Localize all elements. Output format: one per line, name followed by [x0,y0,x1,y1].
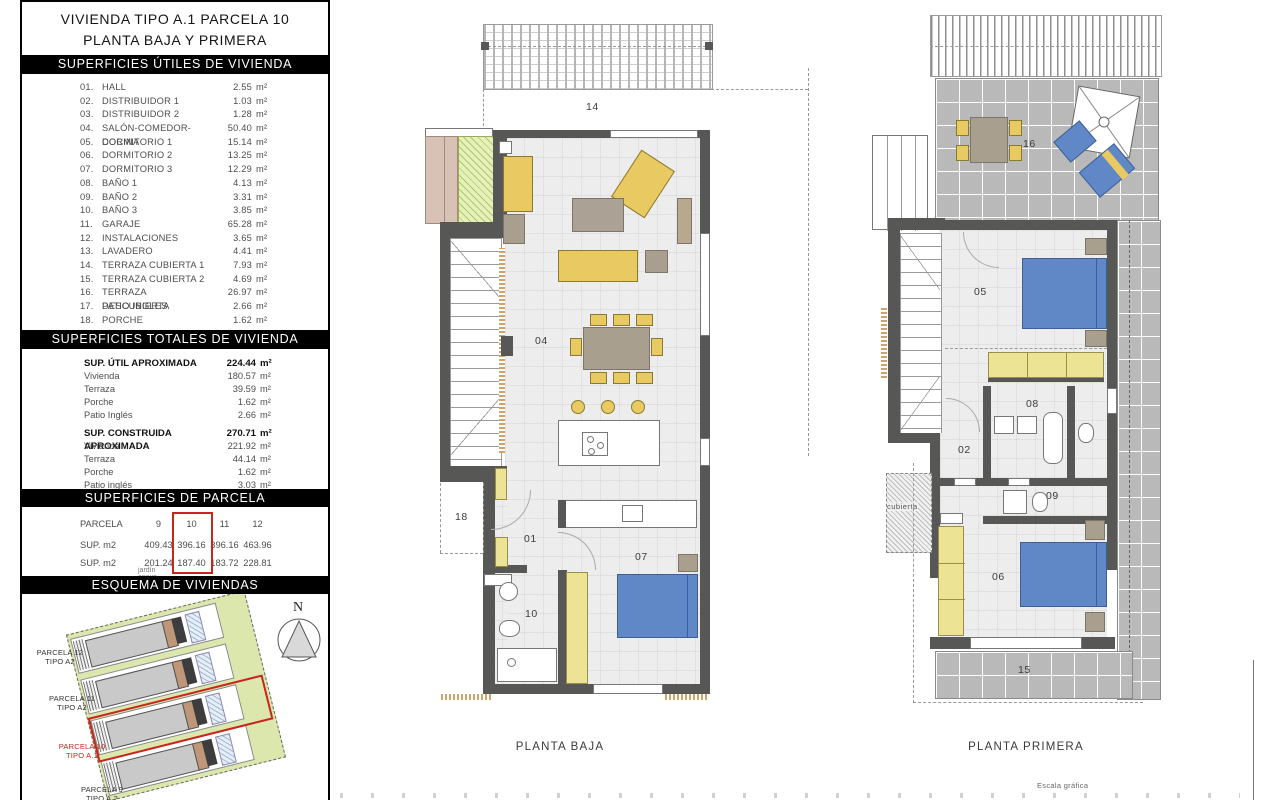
room-area-unit: m² [252,177,278,191]
total-row-name: Porche [84,396,204,409]
dining-chair [613,314,630,326]
label-parcela-12-line1: PARCELA 12 [28,648,92,657]
label-parcela-10-line1: PARCELA 10 [50,742,114,751]
total-row: Porche 1.62 m² [22,466,332,479]
wall-partition [983,386,991,478]
boundary-dashed-line [913,702,1143,703]
room-name: PORCHE [102,314,206,328]
room-number: 07. [80,163,102,177]
room-area-row: 15. TERRAZA CUBIERTA 2 4.69 m² [22,273,328,287]
room-area-unit: m² [252,108,278,122]
room-area-value: 15.14 [206,136,252,150]
total-row: Terraza 44.14 m² [22,453,332,466]
section-header-superficies-totales: SUPERFICIES TOTALES DE VIVIENDA [20,330,330,349]
kitchen-island [558,420,660,466]
toilet [1078,423,1094,443]
dining-chair [570,338,582,356]
room-number: 10. [80,204,102,218]
room-number: 06. [80,149,102,163]
boundary-dashed-line [1129,220,1130,698]
room-area-value: 4.69 [206,273,252,287]
total-row-unit: m² [256,396,282,409]
porch-outline [483,483,484,553]
room-number: 12. [80,232,102,246]
total-row: Vivienda 180.57 m² [22,370,332,383]
room-number: 18. [80,314,102,328]
terrace-chair [1009,145,1022,161]
label-parcela-9-line1: PARCELA 9 [70,785,134,794]
room-label-distribuidor1: 02 [958,444,971,456]
room-area-unit: m² [252,273,278,287]
wardrobe-divider [939,599,965,600]
label-parcela-11-line2: TIPO A2 [40,703,104,712]
stair-diagonal [450,398,500,456]
total-row-name: Terraza [84,383,204,396]
total-row: Terraza 39.59 m² [22,383,332,396]
pergola-grid [483,24,713,90]
dining-chair [636,372,653,384]
room-name: TERRAZA CUBIERTA 1 [102,259,206,273]
room-number: 09. [80,191,102,205]
dining-chair [636,314,653,326]
sup-value: 463.96 [241,540,274,550]
wall-stub [501,336,513,356]
room-name: GARAJE [102,218,206,232]
bed [1020,542,1107,607]
room-area-unit: m² [252,81,278,95]
total-construida-value: 270.71 [204,427,256,440]
room-name: INSTALACIONES [102,232,206,246]
total-construida-rows: Vivienda 221.92 m² Terraza 44.14 m² Porc… [22,440,332,492]
plot-pool [215,733,237,766]
total-row-value: 180.57 [204,370,256,383]
room-area-row: 16. TERRAZA DESCUBIERTA 26.97 m² [22,286,328,300]
room-label-dormitorio1: 05 [974,286,987,298]
wardrobe [988,352,1104,378]
room-number: 08. [80,177,102,191]
total-row-name: Patio Inglés [84,409,204,422]
plot-pool [185,611,207,644]
room-area-value: 2.55 [206,81,252,95]
porch-outline [440,553,483,554]
parcel-col: 12 [241,519,274,529]
total-construida-header: SUP. CONSTRUIDA APROXIMADA 270.71 m² [22,427,332,440]
room-area-value: 7.93 [206,259,252,273]
insulation-hatch [665,694,709,700]
titleblock-frame-line [1253,660,1254,800]
total-row-unit: m² [256,409,282,422]
room-area-unit: m² [252,163,278,177]
closet [495,468,507,500]
planter-hatch [458,136,495,226]
terrace-boundary-line [711,89,808,90]
room-number: 15. [80,273,102,287]
dining-table [583,327,650,370]
room-area-unit: m² [252,259,278,273]
room-area-unit: m² [252,149,278,163]
label-parcela-10-line2: TIPO A.1 [50,751,114,760]
room-area-unit: m² [252,245,278,259]
room-area-unit: m² [252,136,278,150]
total-row-value: 44.14 [204,453,256,466]
total-row-name: Porche [84,466,204,479]
room-area-unit: m² [252,122,278,136]
bathtub [1043,412,1063,464]
total-util-block: SUP. ÚTIL APROXIMADA 224.44 m² Vivienda … [22,357,332,422]
total-util-unit: m² [256,357,282,370]
room-area-value: 65.28 [206,218,252,232]
section-header-esquema: ESQUEMA DE VIVIENDAS [20,576,330,595]
total-row-unit: m² [256,370,282,383]
total-row-name: Terraza [84,453,204,466]
total-row-name: Vivienda [84,370,204,383]
room-area-value: 3.31 [206,191,252,205]
boundary-dashed-line [913,463,914,703]
insulation-hatch [441,694,491,700]
window-east [700,438,710,466]
total-row: Porche 1.62 m² [22,396,332,409]
highlight-parcel-10-box [172,512,213,574]
room-area-unit: m² [252,314,278,328]
terrace-chair [956,145,969,161]
bar-stool [631,400,645,414]
door-gap [1008,478,1030,486]
room-label-dormitorio2: 06 [992,571,1005,583]
total-row-unit: m² [256,440,282,453]
room-name: TERRAZA DESCUBIERTA [102,286,206,300]
nightstand [1085,520,1105,540]
room-number: 17. [80,300,102,314]
room-number: 13. [80,245,102,259]
room-number: 02. [80,95,102,109]
room-label-bano3: 10 [525,608,538,620]
toilet [1032,492,1048,512]
plan-caption-baja: PLANTA BAJA [480,741,640,753]
room-name: BAÑO 1 [102,177,206,191]
room-label-terraza-descubierta: 16 [1023,138,1036,150]
total-row-unit: m² [256,383,282,396]
wall-stair-west [440,238,450,466]
terrace-table [970,117,1008,163]
plot-pool [195,652,217,685]
room-label-bano1: 08 [1026,398,1039,410]
wall-east [700,130,710,694]
wardrobe-divider [939,563,965,564]
wardrobe [566,572,588,684]
room-number: 04. [80,122,102,136]
door-gap [954,478,976,486]
room-area-row: 17. PATIO INGLES 2.66 m² [22,300,328,314]
insulation-hatch [881,308,887,378]
room-label-salon: 04 [535,335,548,347]
parcel-col: 9 [142,519,175,529]
room-divider-dashed [945,348,1107,349]
label-parcela-12-line2: TIPO A2 [28,657,92,666]
stair-line [901,136,902,231]
room-number: 05. [80,136,102,150]
room-area-unit: m² [252,300,278,314]
scale-bar-ticks [340,793,1240,798]
total-construida-block: SUP. CONSTRUIDA APROXIMADA 270.71 m² Viv… [22,427,332,492]
wall-segment [440,222,507,238]
roof-patch [886,473,932,553]
room-number: 01. [80,81,102,95]
room-area-row: 14. TERRAZA CUBIERTA 1 7.93 m² [22,259,328,273]
room-area-row: 03. DISTRIBUIDOR 2 1.28 m² [22,108,328,122]
sliding-door [593,684,663,694]
wardrobe [938,526,964,636]
wardrobe-divider [1066,353,1067,379]
burner [597,442,604,449]
room-area-row: 09. BAÑO 2 3.31 m² [22,191,328,205]
room-area-row: 10. BAÑO 3 3.85 m² [22,204,328,218]
sheet-title-line1: VIVIENDA TIPO A.1 PARCELA 10 [22,9,328,30]
parcel-label: PARCELA [80,519,142,529]
parcel-table: PARCELA 9 10 11 12 SUP. m2 409.43 396.16… [20,507,330,576]
shower [497,648,557,682]
room-label-terraza-cubierta1: 14 [586,101,599,113]
room-area-row: 06. DORMITORIO 2 13.25 m² [22,149,328,163]
section-header-superficies-parcela: SUPERFICIES DE PARCELA [20,489,330,508]
room-area-value: 12.29 [206,163,252,177]
terrace-boundary-line [483,89,484,131]
room-area-row: 18. PORCHE 1.62 m² [22,314,328,328]
room-number: 14. [80,259,102,273]
stair-diagonal [900,235,940,290]
room-number: 16. [80,286,102,300]
room-label-terraza-cubierta2: 15 [1018,664,1031,676]
scale-label: Escala gráfica [1037,781,1088,790]
room-area-value: 2.66 [206,300,252,314]
bath-sink [994,416,1014,434]
burner [588,448,595,455]
coffee-table [572,198,624,232]
total-row-value: 2.66 [204,409,256,422]
label-parcela-11: PARCELA 11 TIPO A2 [40,694,104,712]
room-area-value: 4.41 [206,245,252,259]
room-area-value: 3.85 [206,204,252,218]
room-number: 03. [80,108,102,122]
shelf [940,513,963,524]
room-area-row: 12. INSTALACIONES 3.65 m² [22,232,328,246]
stair-diagonal [900,376,940,431]
label-parcela-12: PARCELA 12 TIPO A2 [28,648,92,666]
label-parcela-11-line1: PARCELA 11 [40,694,104,703]
room-area-unit: m² [252,95,278,109]
total-row-value: 1.62 [204,466,256,479]
bar-stool [601,400,615,414]
pergola-beam-line [930,46,1160,47]
room-area-unit: m² [252,204,278,218]
room-area-unit: m² [252,286,278,300]
room-area-value: 1.03 [206,95,252,109]
nightstand [678,554,698,572]
tv-sideboard [677,198,692,244]
dining-chair [590,372,607,384]
room-area-row: 08. BAÑO 1 4.13 m² [22,177,328,191]
sup-value: 409.43 [142,540,175,550]
room-area-row: 13. LAVADERO 4.41 m² [22,245,328,259]
room-area-value: 3.65 [206,232,252,246]
bed-headboard-line [1096,259,1097,328]
label-parcela-10: PARCELA 10 TIPO A.1 [50,742,114,760]
floor-plan-planta-baja: 14 18 [425,8,817,738]
exterior-stair [872,135,928,230]
counter-end-wall [558,500,566,528]
storage-unit [425,136,445,224]
total-row-name: Vivienda [84,440,204,453]
room-name: TERRAZA CUBIERTA 2 [102,273,206,287]
wall-partition [1067,386,1075,478]
terrace-chair [956,120,969,136]
title-box: VIVIENDA TIPO A.1 PARCELA 10 PLANTA BAJA… [20,0,330,55]
dining-chair [651,338,663,356]
total-row-value: 39.59 [204,383,256,396]
bar-stool [571,400,585,414]
total-construida-label: SUP. CONSTRUIDA APROXIMADA [84,427,204,440]
room-name: HALL [102,81,206,95]
room-name: BAÑO 2 [102,191,206,205]
burner [587,436,594,443]
window-east [700,233,710,336]
room-name: DORMITORIO 2 [102,149,206,163]
total-row-value: 1.62 [204,396,256,409]
room-label-dormitorio3: 07 [635,551,648,563]
nightstand [1085,238,1107,255]
room-area-value: 13.25 [206,149,252,163]
total-row: Patio Inglés 2.66 m² [22,409,332,422]
room-label-hall: 01 [524,533,537,545]
storage-unit [444,136,458,224]
window [610,130,698,138]
room-name: DISTRIBUIDOR 2 [102,108,206,122]
room-name: DORMITORIO 3 [102,163,206,177]
total-row-unit: m² [256,453,282,466]
wall-segment [988,378,1104,382]
stair-line [915,136,916,231]
kitchen-sink [622,505,643,522]
site-plan: PARCELA 12 TIPO A2 PARCELA 11 TIPO A2 PA… [20,594,330,800]
room-area-unit: m² [252,191,278,205]
info-panel: VIVIENDA TIPO A.1 PARCELA 10 PLANTA BAJA… [20,0,330,800]
room-label-porche: 18 [455,511,468,523]
room-area-value: 1.62 [206,314,252,328]
total-util-rows: Vivienda 180.57 m² Terraza 39.59 m² Porc… [22,370,332,422]
pergola-beam-line [483,46,711,47]
nightstand [1085,330,1107,347]
room-name: LAVADERO [102,245,206,259]
bed [1022,258,1107,329]
room-area-unit: m² [252,218,278,232]
dining-chair [590,314,607,326]
shower-drain [507,658,516,667]
nightstand [1085,612,1105,632]
sliding-door [970,637,1082,649]
plan-caption-primera: PLANTA PRIMERA [926,741,1126,753]
room-area-row: 01. HALL 2.55 m² [22,81,328,95]
pergola-post [481,42,489,50]
jardin-value: 228.81 [241,558,274,568]
porch-outline [440,483,441,553]
toilet [499,620,520,637]
room-area-value: 50.40 [206,122,252,136]
room-number: 11. [80,218,102,232]
total-row-unit: m² [256,466,282,479]
terrace-chair [1009,120,1022,136]
pergola-post [705,42,713,50]
room-name: PATIO INGLES [102,300,206,314]
room-name: DISTRIBUIDOR 1 [102,95,206,109]
cooktop [582,432,608,456]
total-util-label: SUP. ÚTIL APROXIMADA [84,357,204,370]
bed [617,574,698,638]
room-area-row: 07. DORMITORIO 3 12.29 m² [22,163,328,177]
wall-top [945,220,1112,230]
wardrobe-divider [1027,353,1028,379]
closet [495,537,508,567]
bed-headboard-line [687,575,688,637]
room-areas-list: 01. HALL 2.55 m² 02. DISTRIBUIDOR 1 1.03… [20,74,330,330]
room-area-value: 26.97 [206,286,252,300]
room-name: SALÓN-COMEDOR-COCINA [102,122,206,136]
wall-west-upper [888,230,900,438]
label-parcela-9-line2: TIPO A.2 [70,794,134,800]
room-area-unit: m² [252,232,278,246]
jardin-label-main: SUP. m2 [80,558,116,568]
compass-icon [275,616,323,664]
total-construida-unit: m² [256,427,282,440]
bath-sink [1017,416,1037,434]
side-table [503,214,525,244]
side-table [645,250,668,273]
sup-label: SUP. m2 [80,540,142,550]
sheet-title-line2: PLANTA BAJA Y PRIMERA [22,30,328,51]
total-util-header: SUP. ÚTIL APROXIMADA 224.44 m² [22,357,332,370]
floor-plan-planta-primera: 16 [868,8,1173,738]
totals-box: SUP. ÚTIL APROXIMADA 224.44 m² Vivienda … [20,349,330,489]
bath-sink [499,582,518,601]
room-area-row: 02. DISTRIBUIDOR 1 1.03 m² [22,95,328,109]
parcel-boundary-line [808,68,809,456]
room-area-row: 05. DORMITORIO 1 15.14 m² [22,136,328,150]
dining-chair [613,372,630,384]
wall-niche [499,141,512,154]
covered-terrace [935,651,1133,699]
window-east [1107,388,1117,414]
room-area-row: 04. SALÓN-COMEDOR-COCINA 50.40 m² [22,122,328,136]
north-letter: N [293,600,303,616]
room-area-value: 4.13 [206,177,252,191]
room-name: BAÑO 3 [102,204,206,218]
sofa [503,156,533,212]
sofa [558,250,638,282]
wall-segment [888,218,945,230]
room-name: DORMITORIO 1 [102,136,206,150]
section-header-superficies-utiles: SUPERFICIES ÚTILES DE VIVIENDA [20,55,330,74]
room-area-row: 11. GARAJE 65.28 m² [22,218,328,232]
room-area-value: 1.28 [206,108,252,122]
label-parcela-9: PARCELA 9 TIPO A.2 [70,785,134,800]
bed-headboard-line [1096,543,1097,606]
total-row: Vivienda 221.92 m² [22,440,332,453]
total-row-value: 221.92 [204,440,256,453]
stair-line [887,136,888,231]
shower [1003,490,1027,514]
total-util-value: 224.44 [204,357,256,370]
side-terrace-strip [1117,220,1161,700]
drawing-sheet: VIVIENDA TIPO A.1 PARCELA 10 PLANTA BAJA… [0,0,1280,800]
jardin-label: SUP. m2 jardín anexo [80,558,142,568]
